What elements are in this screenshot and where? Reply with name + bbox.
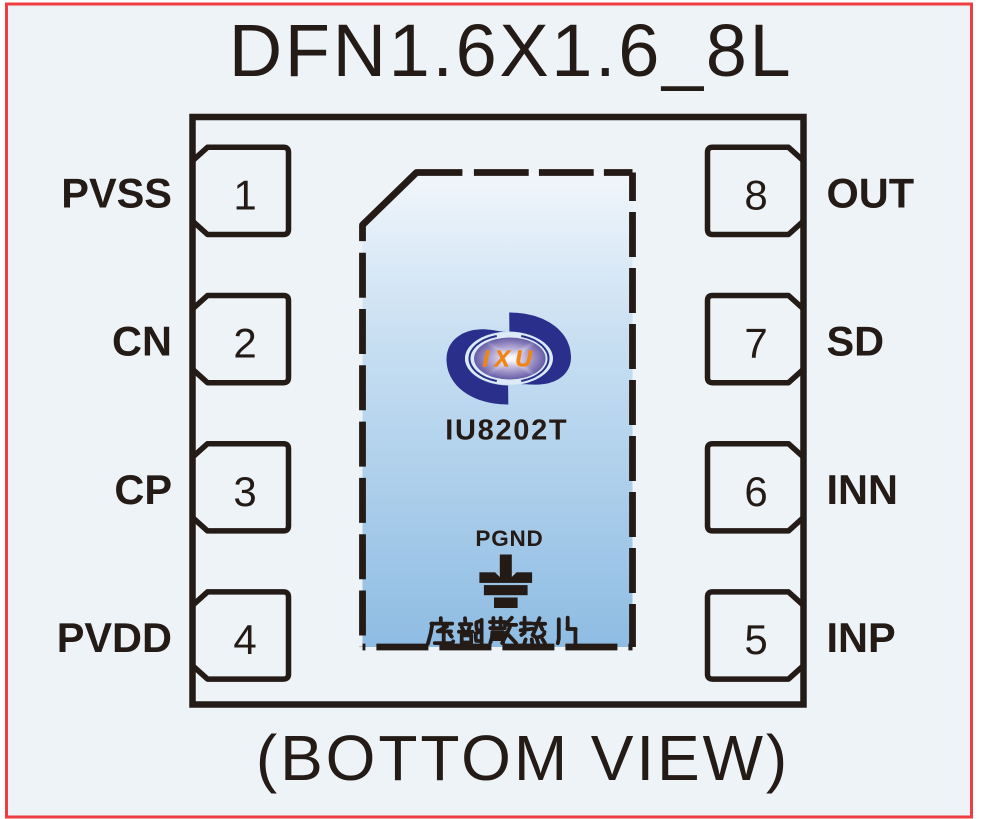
svg-text:7: 7: [744, 320, 767, 367]
svg-text:OUT: OUT: [827, 170, 915, 217]
svg-text:6: 6: [744, 468, 767, 515]
svg-text:PVDD: PVDD: [57, 614, 172, 661]
svg-text:2: 2: [233, 320, 256, 367]
svg-text:8: 8: [744, 172, 767, 219]
svg-text:PVSS: PVSS: [61, 170, 172, 217]
svg-text:SD: SD: [827, 318, 885, 365]
svg-text:5: 5: [744, 616, 767, 663]
svg-text:1: 1: [233, 172, 256, 219]
svg-text:IXU: IXU: [483, 346, 538, 372]
svg-text:INP: INP: [827, 614, 896, 661]
svg-text:(BOTTOM VIEW): (BOTTOM VIEW): [256, 722, 790, 794]
svg-text:CN: CN: [112, 318, 172, 365]
svg-text:DFN1.6X1.6_8L: DFN1.6X1.6_8L: [229, 9, 793, 92]
svg-text:INN: INN: [827, 466, 898, 513]
svg-text:CP: CP: [114, 466, 172, 513]
svg-text:3: 3: [233, 468, 256, 515]
svg-text:IU8202T: IU8202T: [445, 415, 568, 447]
svg-text:PGND: PGND: [475, 526, 543, 551]
svg-text:4: 4: [233, 616, 256, 663]
